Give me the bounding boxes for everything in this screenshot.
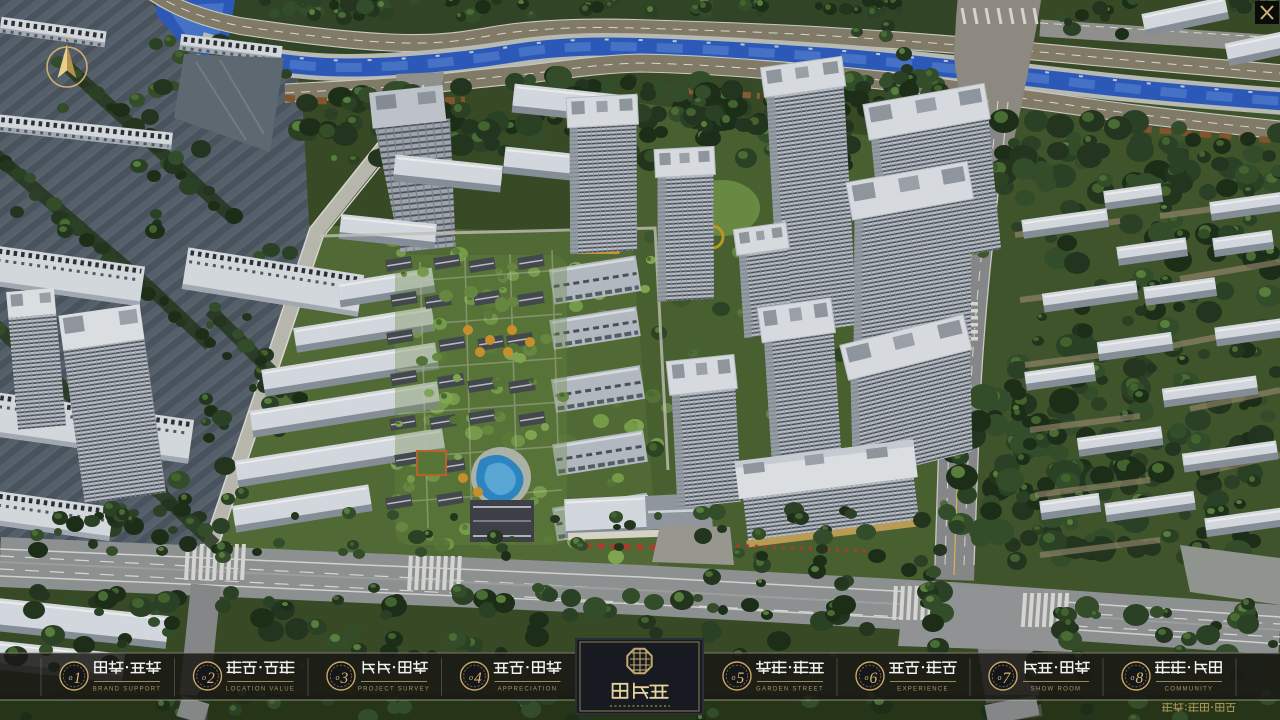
svg-text:N: N [64, 34, 70, 43]
svg-text:o: o [469, 673, 473, 682]
svg-text:LOCATION VALUE: LOCATION VALUE [226, 687, 295, 693]
svg-text:EXPERIENCE: EXPERIENCE [897, 687, 949, 693]
svg-text:COMMUNITY: COMMUNITY [1165, 687, 1214, 693]
svg-text:GARDEN STREET: GARDEN STREET [756, 687, 824, 693]
svg-text:PROJECT SURVEY: PROJECT SURVEY [358, 687, 430, 693]
svg-text:6: 6 [870, 670, 878, 687]
svg-text:o: o [69, 673, 73, 682]
svg-text:4: 4 [474, 670, 482, 687]
svg-text:BRAND SUPPORT: BRAND SUPPORT [93, 687, 161, 693]
svg-text:o: o [1131, 673, 1135, 682]
svg-text:APPRECIATION: APPRECIATION [498, 687, 558, 693]
svg-text:o: o [336, 673, 340, 682]
svg-text:7: 7 [1003, 670, 1012, 687]
svg-text:8: 8 [1136, 670, 1144, 687]
svg-text:3: 3 [340, 670, 349, 687]
svg-text:SHOW ROOM: SHOW ROOM [1031, 687, 1082, 693]
svg-text:2: 2 [207, 670, 215, 687]
svg-text:5: 5 [737, 670, 745, 687]
svg-text:1: 1 [74, 670, 82, 687]
svg-text:o: o [202, 673, 206, 682]
svg-text:o: o [998, 673, 1002, 682]
svg-text:o: o [865, 673, 869, 682]
svg-text:o: o [732, 673, 736, 682]
